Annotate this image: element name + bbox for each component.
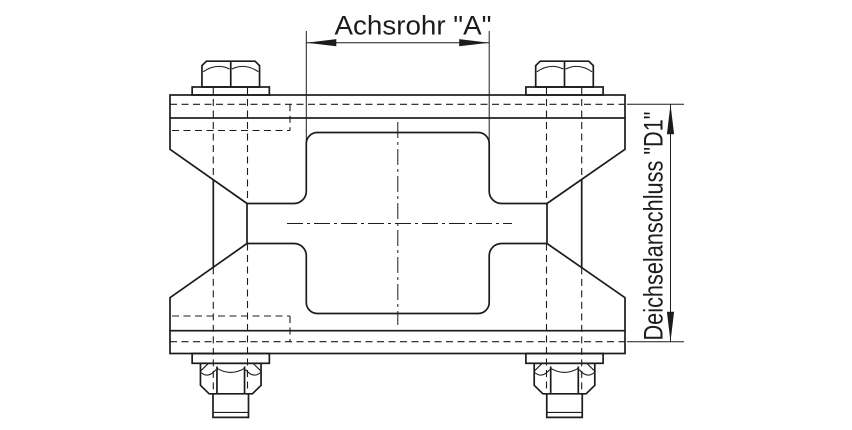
body-outline-right: [547, 118, 625, 331]
axle-tube-dimension-label: Achsrohr "A": [335, 11, 492, 41]
inner-contour-top: [247, 133, 547, 204]
axle-clamp-technical-drawing: Achsrohr "A" Deichselanschluss "D1": [0, 0, 852, 430]
bolt-top-left: [192, 61, 269, 95]
bolt-hole-hidden-right: [547, 88, 582, 394]
bottom-plate: [170, 331, 625, 354]
top-plate: [170, 95, 625, 118]
dimension-arrow-left: [306, 39, 336, 46]
bolt-top-right: [526, 61, 603, 95]
drawing-page: Achsrohr "A" Deichselanschluss "D1": [0, 0, 852, 430]
body-outline-left: [170, 118, 247, 331]
drawbar-connection-dimension-label: Deichselanschluss "D1": [639, 112, 669, 341]
inner-contour-bottom: [247, 244, 547, 314]
centerlines: [287, 122, 512, 325]
nut-bottom-left: [192, 354, 269, 418]
bolt-hole-hidden-left: [213, 88, 247, 394]
nut-bottom-right: [526, 354, 603, 418]
dimension-axle-tube: Achsrohr "A": [306, 11, 491, 144]
dimension-drawbar-connection: Deichselanschluss "D1": [627, 104, 684, 341]
bottom-left-pocket-hidden: [172, 316, 290, 342]
